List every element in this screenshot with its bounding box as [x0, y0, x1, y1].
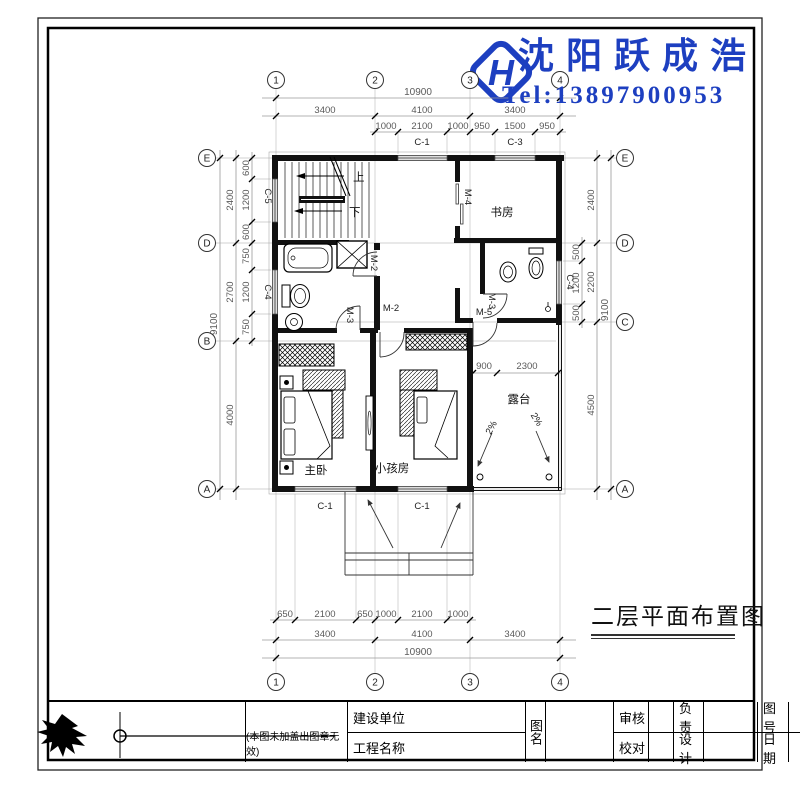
- dim-right-span-3: 4500: [586, 394, 597, 415]
- axis-col-4: 4: [557, 678, 563, 689]
- drain: [546, 474, 552, 480]
- owner-label: 建设单位: [347, 702, 525, 732]
- date-value: [788, 732, 800, 762]
- dim-left-span-1: 2400: [225, 189, 236, 210]
- axis-row-d: D: [621, 239, 628, 250]
- dim-top-d4: 950: [474, 121, 490, 132]
- dim-top-d2: 2100: [411, 121, 432, 132]
- axis-row-a: A: [204, 485, 211, 496]
- stair-down-label: 下: [349, 207, 361, 219]
- duct-shaft: [337, 241, 367, 268]
- toilet-tank: [529, 248, 543, 254]
- dim-top-d6: 950: [539, 121, 555, 132]
- dim-bot-d5: 2100: [411, 609, 432, 620]
- wall-cabinet: [366, 396, 373, 450]
- axis-row-c: C: [621, 318, 628, 329]
- dim-bot-span-1: 3400: [314, 629, 335, 640]
- dim-right-overall: 9100: [600, 298, 611, 321]
- door-label-m5: M-5: [476, 307, 492, 318]
- dim-bot-d3: 650: [357, 609, 373, 620]
- charge-label: 负责: [673, 702, 703, 732]
- axis-row-d: D: [203, 239, 210, 250]
- room-label-kids: 小孩房: [375, 462, 410, 475]
- floor-drain: [546, 307, 551, 312]
- door-label-m2: M-2: [383, 303, 399, 314]
- dim-bot-d2: 2100: [314, 609, 335, 620]
- kids-bedroom-furniture: [366, 334, 467, 459]
- dim-bot-span-2: 4100: [411, 629, 432, 640]
- dim-top-d1: 1000: [375, 121, 396, 132]
- sheet-name-label: 图名: [525, 702, 545, 762]
- room-label-study: 书房: [491, 206, 514, 219]
- dim-bot-span-3: 3400: [504, 629, 525, 640]
- staircase: 上 下: [285, 157, 369, 238]
- window-label-c4-right: C-4: [564, 274, 575, 289]
- wardrobe: [406, 334, 467, 350]
- dim-left-overall: 9100: [209, 312, 220, 335]
- axis-row-a: A: [622, 485, 629, 496]
- drawing-title-block: 二层平面布置图: [591, 597, 735, 639]
- dim-left-d6: 750: [241, 319, 252, 335]
- window-label-c5-left: C-5: [262, 188, 273, 203]
- sheet-no-value: [788, 702, 800, 732]
- slope-label: 2%: [528, 411, 545, 429]
- dim-left-d2: 1200: [241, 189, 252, 210]
- door-label-m3: M-3: [344, 307, 355, 323]
- dim-left-span-3: 4000: [225, 404, 236, 425]
- axis-col-1: 1: [273, 678, 279, 689]
- axis-col-3: 3: [467, 76, 473, 87]
- dim-terrace-2: 2300: [516, 361, 537, 372]
- dim-top-span-1: 3400: [314, 105, 335, 116]
- dim-left-d4: 750: [241, 248, 252, 264]
- dims-left: 9100 2400 2700 4000 600 1200 600 750 120…: [209, 160, 273, 426]
- dims-right: 500 1200 500 2400 2200 4500 9100 C-4: [564, 189, 611, 415]
- dim-right-span-1: 2400: [586, 189, 597, 210]
- dim-top-overall: 10900: [404, 87, 432, 98]
- design-label: 设计: [673, 732, 703, 762]
- review-label: 审核: [613, 702, 648, 732]
- window-label-c1-top: C-1: [414, 137, 429, 148]
- dim-bot-d6: 1000: [447, 609, 468, 620]
- dims-bottom: 650 2100 650 1000 2100 1000 3400 4100 34…: [277, 609, 526, 658]
- axis-col-1: 1: [273, 76, 279, 87]
- date-label: 日期: [757, 732, 788, 762]
- dim-right-span-2: 2200: [586, 271, 597, 292]
- dim-terrace-1: 900: [476, 361, 492, 372]
- dim-left-d5: 1200: [241, 281, 252, 302]
- stamp-note: (本图未加盖出图章无效): [245, 702, 347, 762]
- axis-row-e: E: [204, 154, 211, 165]
- axis-col-3: 3: [467, 678, 473, 689]
- design-value: [703, 732, 757, 762]
- window-label-c1-bottom: C-1: [414, 501, 429, 512]
- dim-left-d1: 600: [241, 160, 252, 176]
- door-label-m4: M-4: [462, 189, 473, 205]
- check-label: 校对: [613, 732, 648, 762]
- axis-row-e: E: [622, 154, 629, 165]
- dims-terrace: 900 2300: [476, 361, 538, 372]
- drawing-title: 二层平面布置图: [591, 604, 766, 629]
- check-value: [648, 732, 673, 762]
- title-block: (本图未加盖出图章无效) 建设单位 工程名称 图名 审核 校对 负责 设计 图号…: [48, 700, 754, 762]
- review-value: [648, 702, 673, 732]
- axis-col-2: 2: [372, 678, 378, 689]
- master-bedroom-furniture: [279, 344, 345, 474]
- sheet-name-value: [545, 702, 613, 762]
- project-label: 工程名称: [347, 732, 525, 762]
- floor-plan-drawing: H: [0, 0, 800, 800]
- room-label-master: 主卧: [305, 464, 328, 477]
- stair-up-label: 上: [353, 171, 365, 184]
- slope-label: 2%: [484, 419, 500, 437]
- dim-bot-d1: 650: [277, 609, 293, 620]
- title-underline: [591, 634, 735, 636]
- room-label-terrace: 露台: [508, 392, 531, 406]
- window-label-c4-left: C-4: [262, 284, 273, 299]
- bathroom-left-fixtures: [282, 244, 332, 331]
- axis-row-b: B: [204, 337, 211, 348]
- terrace-parapet: [470, 322, 562, 491]
- drawing-sheet: { "brand": {"name": "沈阳跃成浩", "tel": "Tel…: [0, 0, 800, 800]
- dim-top-span-2: 4100: [411, 105, 432, 116]
- door-label-m2: M-2: [368, 255, 379, 271]
- dim-bot-d4: 1000: [375, 609, 396, 620]
- window-label-c1-bottom: C-1: [317, 501, 332, 512]
- dim-top-d5: 1500: [504, 121, 525, 132]
- wardrobe: [279, 344, 334, 366]
- charge-value: [703, 702, 757, 732]
- dim-left-span-2: 2700: [225, 281, 236, 302]
- terrace-details: 2% 2%: [477, 411, 552, 480]
- brand-name: 沈阳跃成浩: [518, 27, 768, 79]
- dim-right-d1: 500: [571, 244, 582, 260]
- brand-phone: Tel:13897900953: [502, 82, 725, 110]
- dim-top-d3: 1000: [447, 121, 468, 132]
- drain: [477, 474, 483, 480]
- axis-col-2: 2: [372, 76, 378, 87]
- window-label-c3-top: C-3: [507, 137, 522, 148]
- sheet-no-label: 图号: [757, 702, 788, 732]
- lower-roof: [345, 492, 473, 575]
- dim-right-d3: 500: [571, 305, 582, 321]
- dim-left-d3: 600: [241, 224, 252, 240]
- toilet-tank: [282, 285, 290, 307]
- title-underline-2: [591, 638, 735, 639]
- dim-bot-overall: 10900: [404, 647, 432, 658]
- bathroom-right-fixtures: [500, 248, 551, 312]
